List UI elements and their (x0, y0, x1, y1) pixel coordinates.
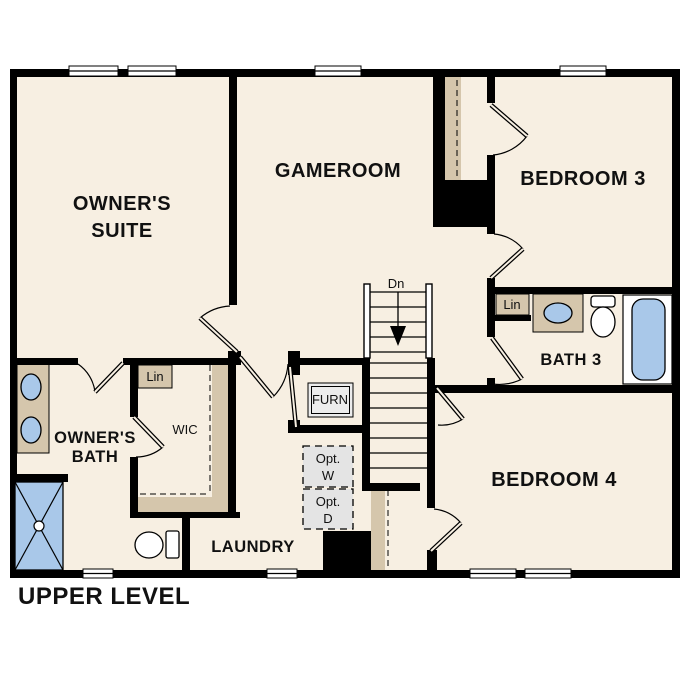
bedroom4-label: BEDROOM 4 (491, 469, 617, 491)
chase-block-lower (323, 531, 371, 570)
optional-washer-label-line2: W (322, 468, 335, 483)
laundry-label: LAUNDRY (211, 538, 295, 556)
optional-dryer-label-line2: D (323, 511, 332, 526)
owners-suite-label-line1: OWNER'S (73, 193, 171, 215)
stair-rail-right (426, 284, 432, 358)
toilet-owners-bath (135, 531, 179, 558)
linen-bath3-label: Lin (503, 297, 520, 312)
bath3-label: BATH 3 (540, 351, 601, 369)
linen-wic-label: Lin (146, 369, 163, 384)
sink-owners-1 (21, 374, 41, 400)
wic-shelf-side (212, 365, 228, 497)
toilet-bath3 (591, 296, 615, 337)
bathtub (623, 295, 672, 384)
owners-suite-label-line2: SUITE (91, 220, 152, 242)
stairs-down-label: Dn (388, 276, 405, 291)
chase-upper (445, 77, 461, 180)
wic-label: WIC (172, 422, 197, 437)
wic-shelf-bottom (138, 497, 228, 512)
plan-title: UPPER LEVEL (18, 583, 190, 610)
floor-plan-drawing: OWNER'S SUITE GAMEROOM BEDROOM 3 BEDROOM… (0, 0, 687, 687)
optional-dryer-label-line1: Opt. (316, 494, 341, 509)
owners-bath-label-line1: OWNER'S (54, 429, 136, 447)
gameroom-label: GAMEROOM (275, 160, 401, 182)
bedroom3-label: BEDROOM 3 (520, 168, 646, 190)
furnace-label: FURN (312, 392, 348, 407)
stair-rail-left (364, 284, 370, 358)
optional-washer-label-line1: Opt. (316, 451, 341, 466)
floor-plan-upper-level: OWNER'S SUITE GAMEROOM BEDROOM 3 BEDROOM… (0, 0, 687, 687)
sink-bath3 (544, 303, 572, 323)
chase-block-upper (433, 180, 495, 227)
sink-owners-2 (21, 417, 41, 443)
chase-lower (371, 488, 385, 570)
owners-bath-label-line2: BATH (72, 448, 119, 466)
shower (15, 482, 63, 570)
